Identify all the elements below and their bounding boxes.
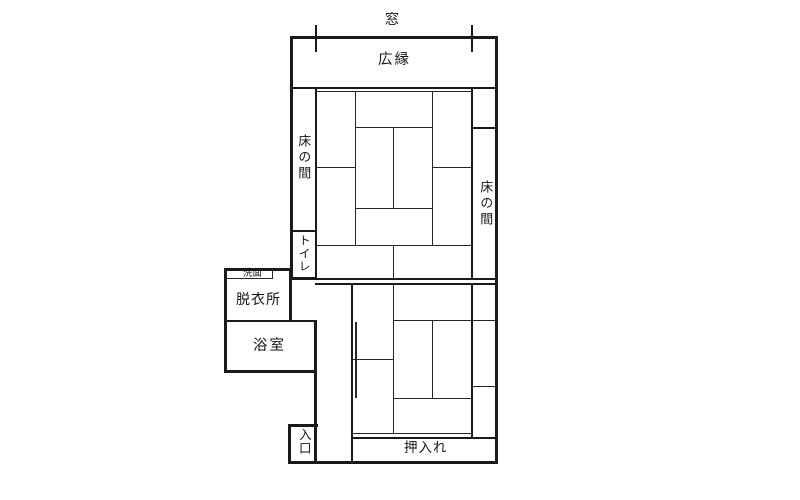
tatami-line xyxy=(393,245,394,278)
window-tick-right xyxy=(471,25,473,52)
wall-veranda-bottom xyxy=(290,87,497,89)
veranda-sill-line xyxy=(316,91,472,92)
wall-left-column-divider xyxy=(315,87,317,279)
wall-dressing-right xyxy=(289,268,292,322)
floor-plan: 窓 広縁 床の間 トイレ 床の間 洗面 脱衣所 浴室 入口 押入れ xyxy=(0,0,800,500)
washbasin-box-right xyxy=(272,268,273,279)
tatami-line xyxy=(393,127,394,208)
wall-upper-room-bottom xyxy=(290,278,497,280)
room-label-veranda: 広縁 xyxy=(378,53,411,69)
tatami-line xyxy=(432,167,472,168)
wall-outer-top-window xyxy=(290,36,498,39)
wall-closet-top xyxy=(351,437,496,439)
wall-lower-section-top xyxy=(315,283,496,285)
room-label-entrance: 入口 xyxy=(297,428,311,455)
wall-entrance-left xyxy=(288,424,291,464)
wall-toilet-top xyxy=(290,230,317,232)
tatami-line xyxy=(352,359,393,360)
wall-outer-right xyxy=(495,36,498,464)
tatami-line xyxy=(355,208,433,209)
room-label-bathroom: 浴室 xyxy=(253,339,286,355)
wall-bathroom-top xyxy=(224,320,317,322)
window-tick-left xyxy=(315,25,317,52)
tatami-line xyxy=(316,245,472,246)
tatami-line xyxy=(393,285,394,434)
room-label-closet: 押入れ xyxy=(404,441,448,456)
wall-outer-left xyxy=(290,36,293,280)
wall-lower-right-divider xyxy=(471,283,473,439)
tatami-line xyxy=(316,167,355,168)
room-label-tokonoma-left: 床の間 xyxy=(295,134,309,182)
tatami-line xyxy=(355,127,433,128)
wall-corridor-right xyxy=(351,283,353,463)
wall-outer-bottom xyxy=(288,461,498,464)
tatami-line xyxy=(393,320,496,321)
room-label-dressing-room: 脱衣所 xyxy=(236,293,281,308)
room-label-washbasin: 洗面 xyxy=(243,269,262,279)
tatami-line xyxy=(472,386,496,387)
tatami-line xyxy=(393,398,472,399)
tatami-line xyxy=(432,320,433,398)
tatami-line xyxy=(432,91,433,245)
sliding-door-line xyxy=(355,322,357,398)
wall-corridor-left xyxy=(314,320,317,464)
room-label-window: 窓 xyxy=(385,13,399,28)
wall-bathroom-bottom xyxy=(224,370,317,373)
room-label-toilet: トイレ xyxy=(297,234,310,273)
wall-right-column-divider xyxy=(471,127,497,129)
wall-upper-right-divider xyxy=(471,87,473,280)
lower-mats-bottom-line xyxy=(351,433,472,434)
tatami-line xyxy=(355,91,356,245)
room-label-tokonoma-right: 床の間 xyxy=(477,180,491,228)
